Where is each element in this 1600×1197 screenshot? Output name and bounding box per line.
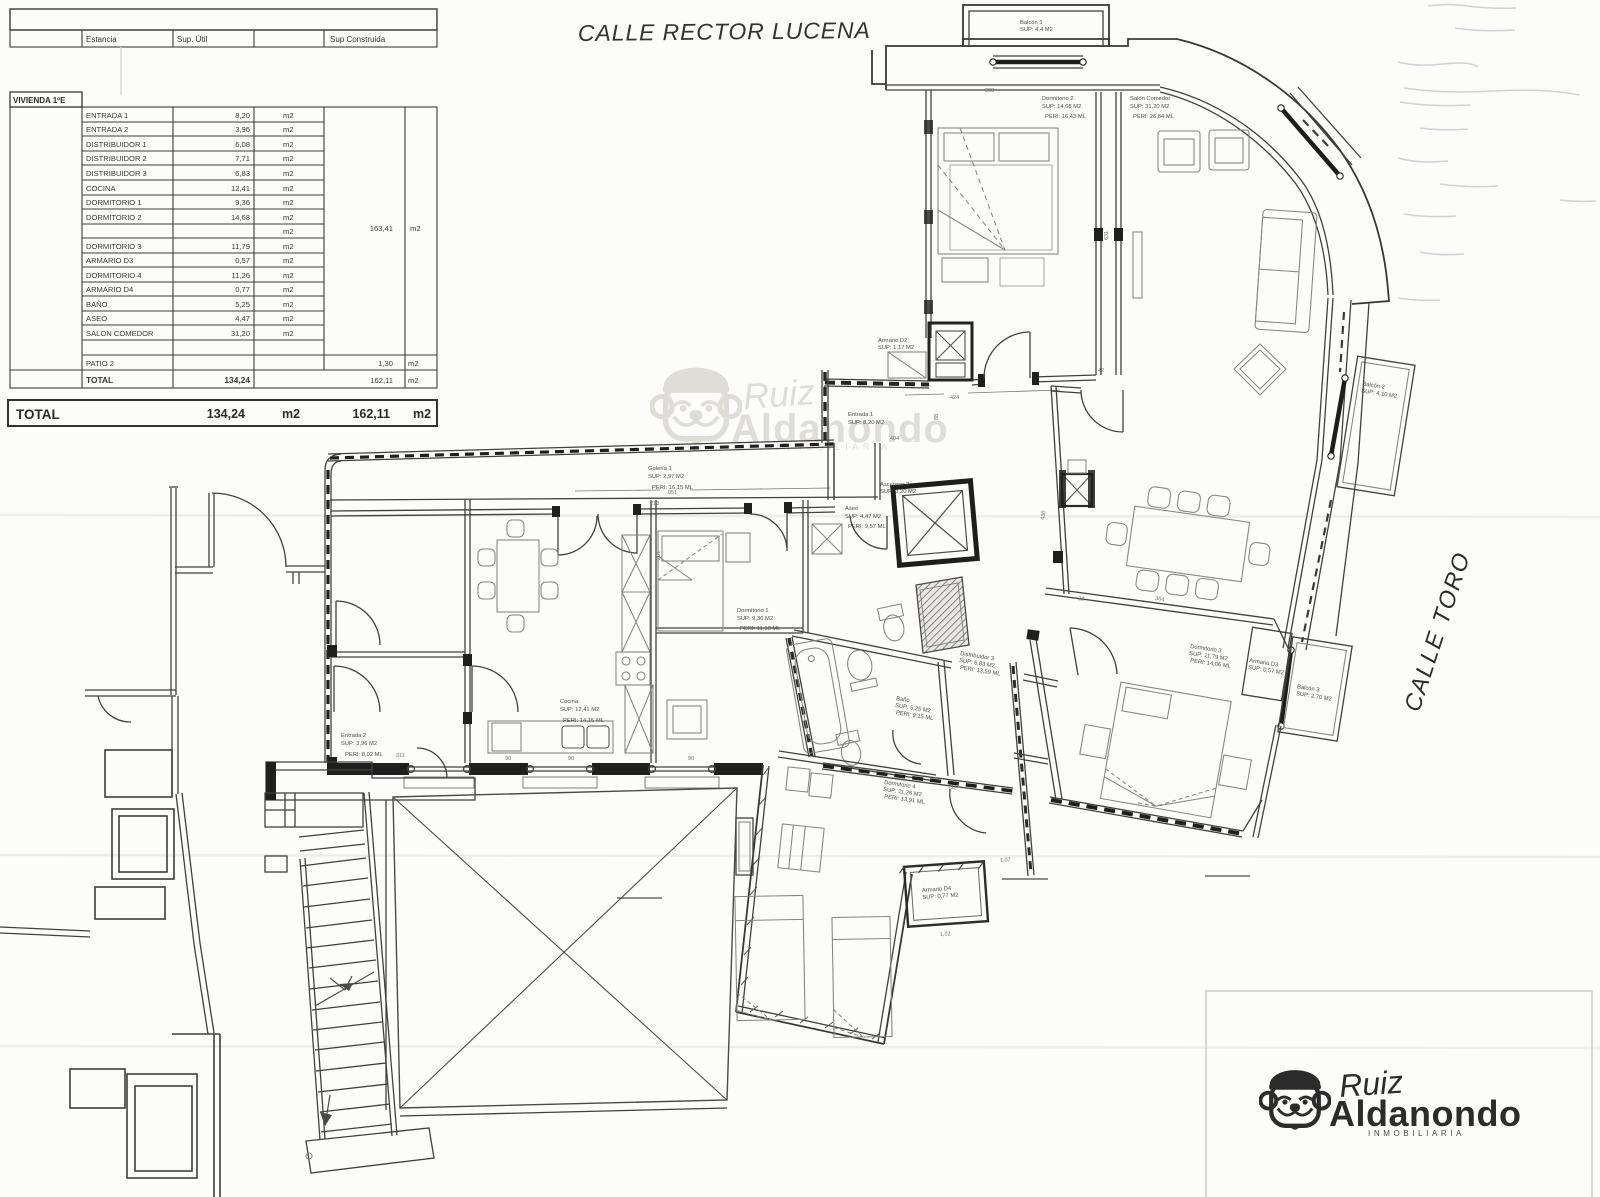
svg-text:12,41: 12,41 <box>231 184 250 193</box>
svg-text:DORMITORIO 3: DORMITORIO 3 <box>86 242 142 251</box>
svg-text:DISTRIBUIDOR 1: DISTRIBUIDOR 1 <box>86 140 147 149</box>
svg-text:PATIO 2: PATIO 2 <box>86 359 114 368</box>
svg-text:Estancia: Estancia <box>86 35 117 44</box>
svg-text:PERI: 9,57 ML: PERI: 9,57 ML <box>848 524 886 530</box>
svg-text:m2: m2 <box>410 224 421 233</box>
svg-text:Ascensor 2: Ascensor 2 <box>880 482 909 488</box>
svg-text:6,83: 6,83 <box>235 169 250 178</box>
svg-text:ENTRADA 2: ENTRADA 2 <box>86 125 128 134</box>
svg-text:m2: m2 <box>408 359 419 368</box>
svg-text:PERI: 11,59 ML: PERI: 11,59 ML <box>740 626 781 632</box>
svg-text:ASEO: ASEO <box>86 314 107 323</box>
svg-text:11,79: 11,79 <box>232 242 250 251</box>
svg-text:m2: m2 <box>283 300 294 309</box>
svg-text:42: 42 <box>1098 368 1104 374</box>
svg-text:308: 308 <box>985 88 994 94</box>
svg-text:m2: m2 <box>283 314 294 323</box>
svg-text:1,07: 1,07 <box>1000 857 1011 864</box>
svg-text:424: 424 <box>950 395 959 401</box>
svg-text:162,11: 162,11 <box>352 407 390 421</box>
svg-text:11,26: 11,26 <box>232 271 250 280</box>
svg-text:COCINA: COCINA <box>86 184 116 193</box>
svg-text:m2: m2 <box>408 376 419 385</box>
svg-text:88: 88 <box>934 414 940 420</box>
svg-text:m2: m2 <box>413 407 431 421</box>
svg-text:m2: m2 <box>283 169 294 178</box>
svg-text:SUP: 1,17 M2: SUP: 1,17 M2 <box>878 345 914 351</box>
svg-text:DISTRIBUIDOR 3: DISTRIBUIDOR 3 <box>86 169 147 178</box>
svg-text:m2: m2 <box>283 329 294 338</box>
svg-text:VIVIENDA 1ºE: VIVIENDA 1ºE <box>13 96 66 105</box>
svg-text:311: 311 <box>396 753 405 759</box>
svg-text:SUP: 3,96 M2: SUP: 3,96 M2 <box>341 741 377 747</box>
svg-text:162,11: 162,11 <box>370 376 393 385</box>
svg-text:6,08: 6,08 <box>235 140 250 149</box>
svg-text:134,24: 134,24 <box>224 375 250 385</box>
svg-text:Entrada 2: Entrada 2 <box>341 733 366 739</box>
svg-text:SUP: 8,20 M2: SUP: 8,20 M2 <box>848 420 884 426</box>
svg-text:Balcón 1: Balcón 1 <box>1020 20 1043 26</box>
svg-text:m2: m2 <box>283 140 294 149</box>
svg-text:364: 364 <box>1155 596 1165 603</box>
svg-text:SUP: 14,68 M2: SUP: 14,68 M2 <box>1042 104 1081 110</box>
svg-text:Sup. Útil: Sup. Útil <box>177 35 207 44</box>
svg-text:90: 90 <box>688 756 694 762</box>
svg-text:Aldanondo: Aldanondo <box>1329 1093 1521 1134</box>
svg-text:631: 631 <box>1104 231 1110 240</box>
svg-text:404: 404 <box>890 436 899 442</box>
svg-text:0,77: 0,77 <box>235 285 250 294</box>
svg-text:m2: m2 <box>283 285 294 294</box>
svg-text:4,47: 4,47 <box>235 314 250 323</box>
svg-text:TOTAL: TOTAL <box>86 375 113 385</box>
svg-text:Sup Construida: Sup Construida <box>330 35 386 44</box>
svg-text:DORMITORIO 2: DORMITORIO 2 <box>86 213 142 222</box>
svg-text:163,41: 163,41 <box>370 224 393 233</box>
svg-text:SUP: 4,47 M2: SUP: 4,47 M2 <box>845 514 881 520</box>
svg-text:SUP: 31,20 M2: SUP: 31,20 M2 <box>1130 104 1169 110</box>
svg-text:TOTAL: TOTAL <box>16 407 60 422</box>
svg-text:SUP: 3,20 M2: SUP: 3,20 M2 <box>880 489 916 495</box>
svg-text:Dormitorio 2: Dormitorio 2 <box>1042 96 1074 102</box>
svg-text:m2: m2 <box>283 184 294 193</box>
svg-text:213: 213 <box>650 501 659 507</box>
svg-text:261: 261 <box>656 551 662 560</box>
svg-text:SALON COMEDOR: SALON COMEDOR <box>86 329 154 338</box>
svg-text:90: 90 <box>568 756 574 762</box>
svg-text:Dormitorio 1: Dormitorio 1 <box>737 608 769 614</box>
svg-text:PERI: 26,84 ML: PERI: 26,84 ML <box>1133 114 1175 120</box>
svg-text:m2: m2 <box>282 407 300 421</box>
svg-text:Entrada 1: Entrada 1 <box>848 412 873 418</box>
svg-text:ARMARIO D4: ARMARIO D4 <box>86 285 133 294</box>
svg-text:DORMITORIO 4: DORMITORIO 4 <box>86 271 142 280</box>
svg-text:ENTRADA 1: ENTRADA 1 <box>86 111 128 120</box>
svg-text:m2: m2 <box>283 256 294 265</box>
svg-text:90: 90 <box>505 756 511 762</box>
svg-text:31,20: 31,20 <box>231 329 250 338</box>
svg-text:Armario D2: Armario D2 <box>878 338 907 344</box>
svg-text:1,02: 1,02 <box>940 931 951 938</box>
svg-text:28: 28 <box>1078 596 1085 603</box>
svg-text:Cocina: Cocina <box>560 699 579 705</box>
svg-text:134,24: 134,24 <box>207 407 245 421</box>
svg-text:430: 430 <box>1040 510 1048 520</box>
svg-text:PERI: 16,15 ML: PERI: 16,15 ML <box>652 485 694 491</box>
svg-text:Galería 1: Galería 1 <box>648 466 672 472</box>
svg-text:DISTRIBUIDOR 2: DISTRIBUIDOR 2 <box>86 154 147 163</box>
svg-text:SUP: 12,41 M2: SUP: 12,41 M2 <box>560 707 599 713</box>
svg-text:PERI: 16,43 ML: PERI: 16,43 ML <box>1045 114 1087 120</box>
svg-text:CALLE TORO: CALLE TORO <box>1399 548 1475 714</box>
svg-text:0,57: 0,57 <box>235 256 250 265</box>
svg-text:14,68: 14,68 <box>231 213 250 222</box>
svg-text:7,71: 7,71 <box>235 154 250 163</box>
svg-text:SUP: 2,97 M2: SUP: 2,97 M2 <box>648 474 684 480</box>
svg-text:5,25: 5,25 <box>235 300 250 309</box>
svg-text:PERI: 14,15 ML: PERI: 14,15 ML <box>563 718 605 724</box>
svg-text:ARMARIO D3: ARMARIO D3 <box>86 256 133 265</box>
svg-text:3,96: 3,96 <box>235 125 250 134</box>
svg-text:BAÑO: BAÑO <box>86 300 108 309</box>
svg-text:PERI: 8,02 ML: PERI: 8,02 ML <box>345 752 383 758</box>
svg-text:SUP: 4,4 M2: SUP: 4,4 M2 <box>1020 27 1053 33</box>
svg-text:Salón Comedor: Salón Comedor <box>1130 96 1170 102</box>
svg-text:m2: m2 <box>283 227 294 236</box>
svg-text:m2: m2 <box>283 213 294 222</box>
svg-text:SUP: 0,77 M2: SUP: 0,77 M2 <box>922 892 958 901</box>
svg-text:1,30: 1,30 <box>378 359 393 368</box>
svg-text:m2: m2 <box>283 111 294 120</box>
svg-text:111: 111 <box>948 784 957 791</box>
svg-text:m2: m2 <box>283 242 294 251</box>
svg-text:m2: m2 <box>283 198 294 207</box>
svg-text:m2: m2 <box>283 154 294 163</box>
svg-text:m2: m2 <box>283 125 294 134</box>
svg-text:CALLE RECTOR LUCENA: CALLE RECTOR LUCENA <box>578 17 871 46</box>
svg-text:8,20: 8,20 <box>235 111 250 120</box>
svg-text:INMOBILIARIA: INMOBILIARIA <box>1368 1129 1465 1138</box>
svg-text:SUP: 9,36 M2: SUP: 9,36 M2 <box>737 616 773 622</box>
svg-text:m2: m2 <box>283 271 294 280</box>
svg-text:9,36: 9,36 <box>235 198 250 207</box>
svg-text:Aseo: Aseo <box>845 506 858 512</box>
svg-text:DORMITORIO 1: DORMITORIO 1 <box>86 198 142 207</box>
